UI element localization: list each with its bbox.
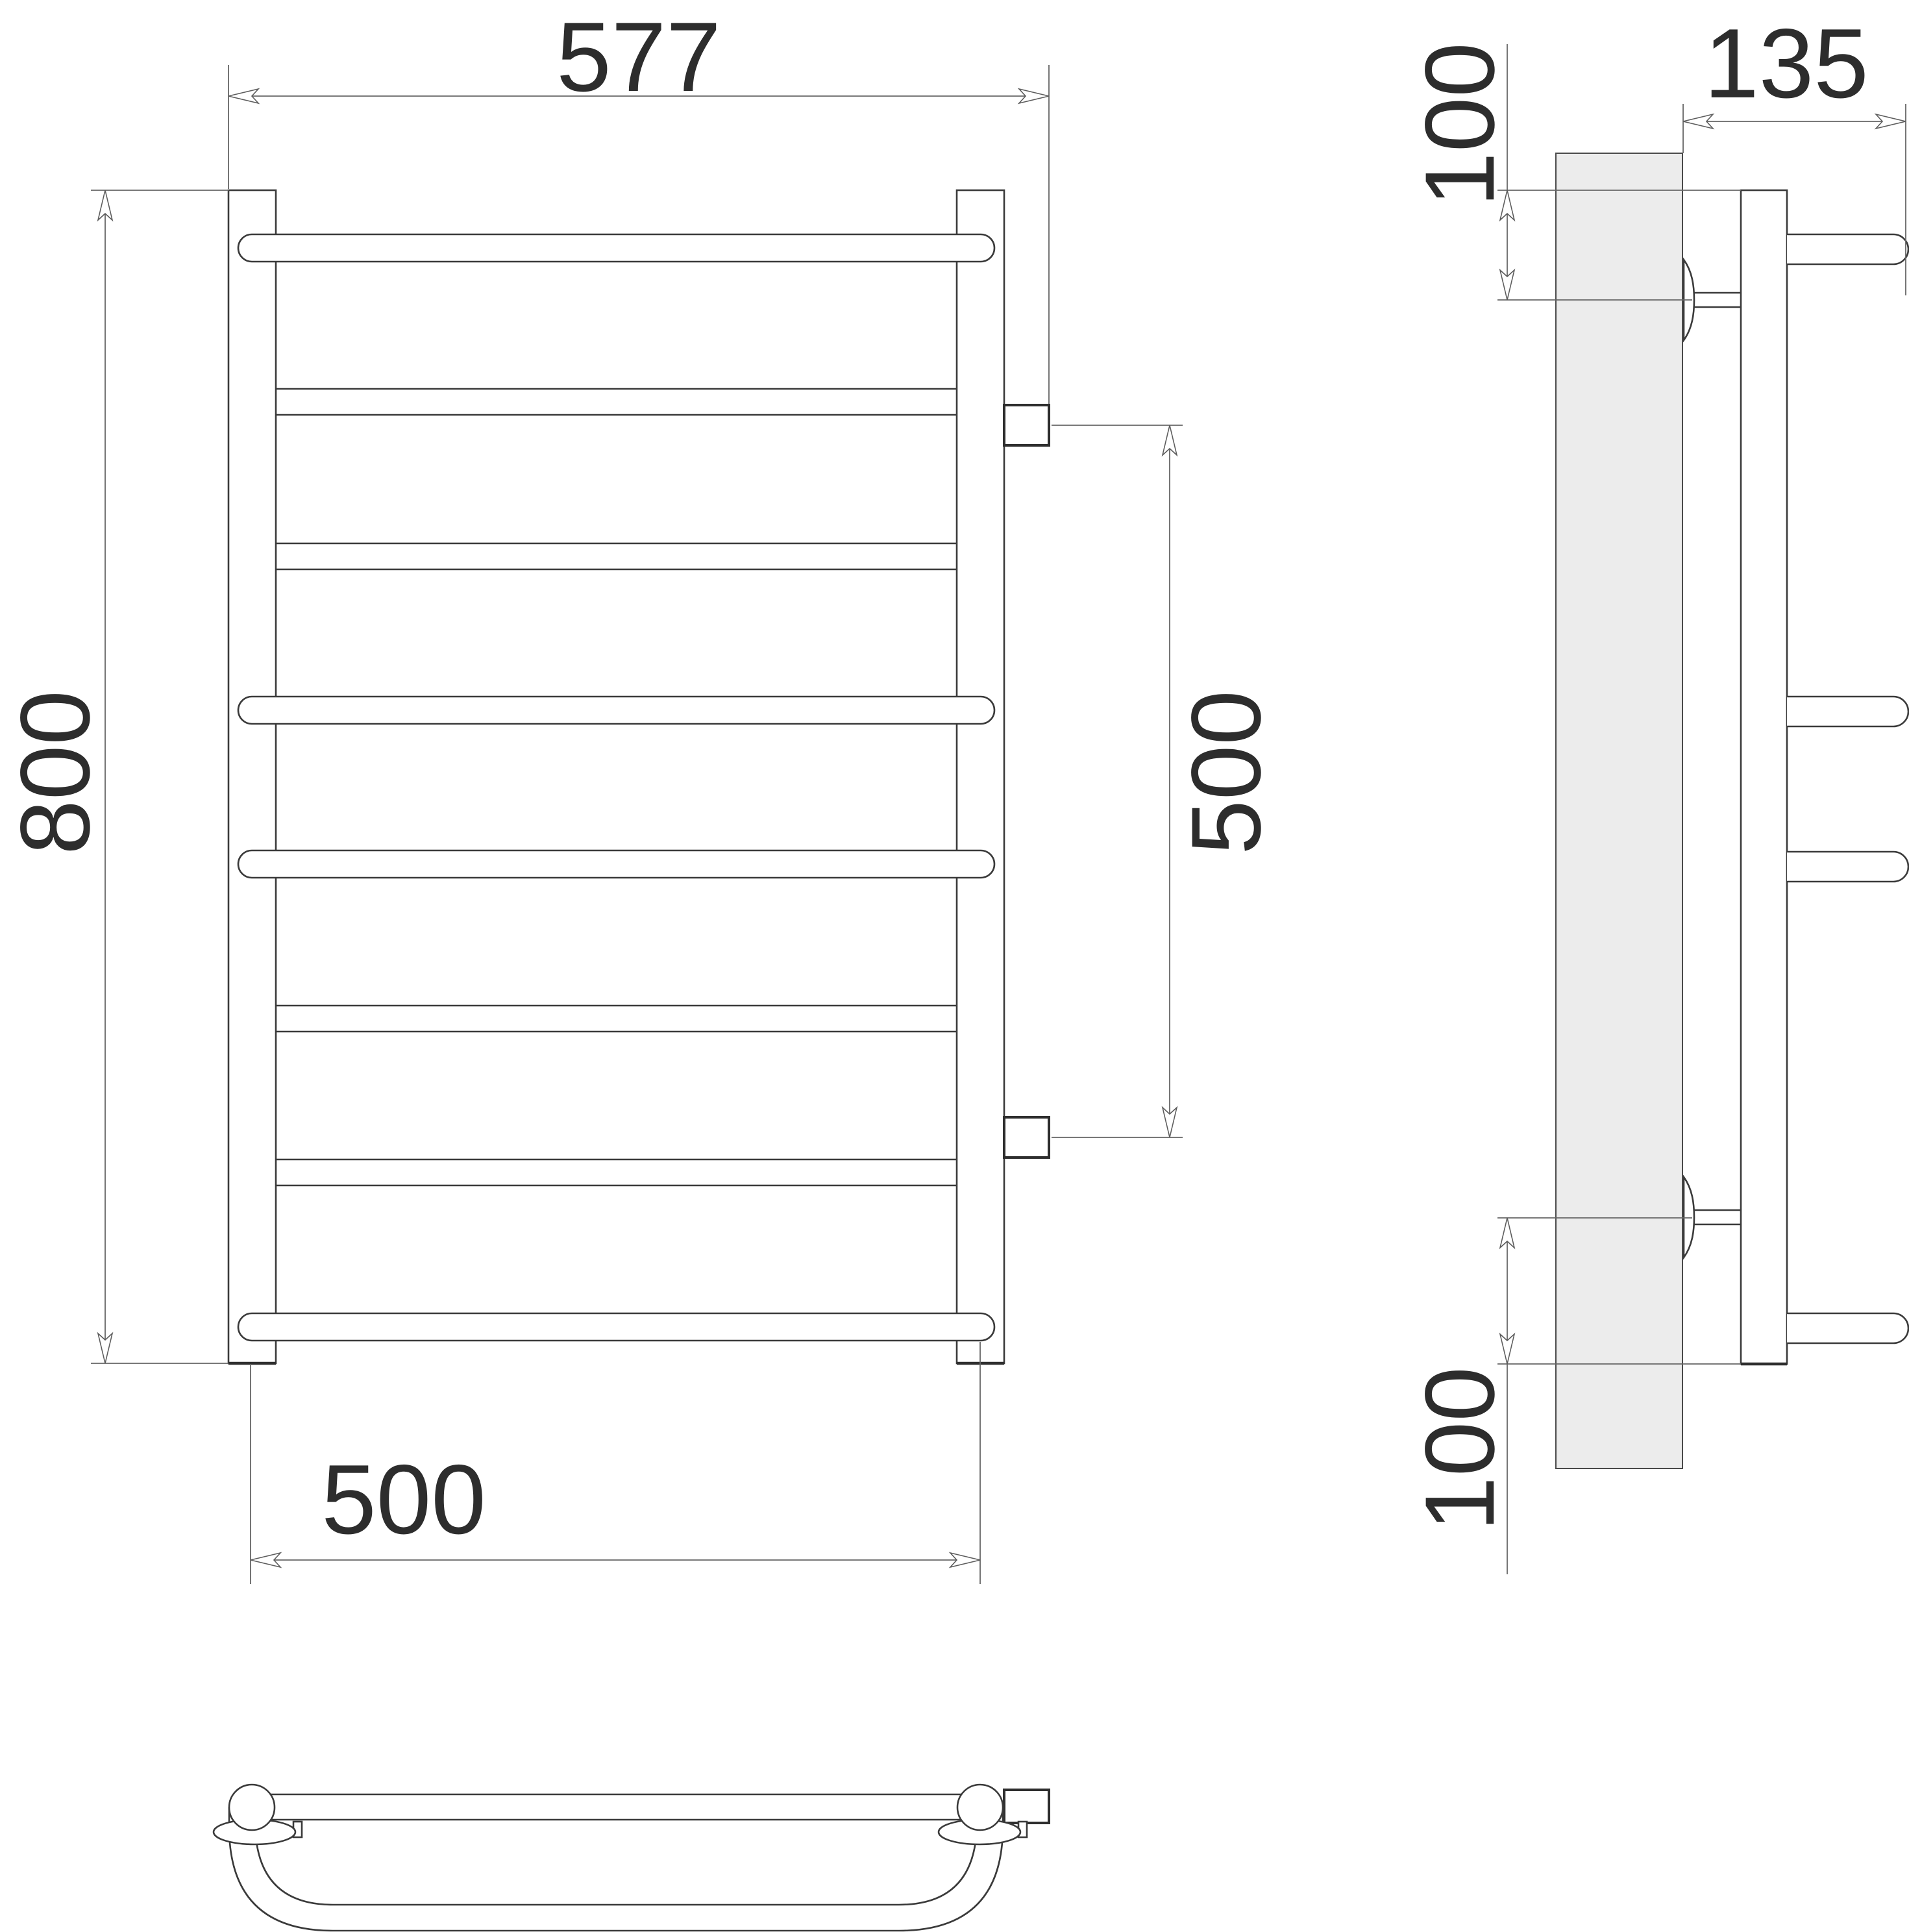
bottom-left-post-section — [229, 1785, 275, 1830]
front-bar-4 — [238, 697, 994, 724]
bottom-straight-tube — [266, 1794, 966, 1820]
front-bar-2 — [276, 389, 957, 415]
front-left-post — [228, 190, 276, 1363]
bracket-stem — [1693, 293, 1741, 307]
bottom-u-tube-outer — [229, 1807, 1003, 1931]
side-tube-middle-1 — [1787, 697, 1908, 726]
dim-label-bar-length: 500 — [321, 1444, 486, 1555]
dim-label-connection-spacing: 500 — [1171, 690, 1281, 855]
extension-lines — [1052, 425, 1183, 1137]
dim-label-top-offset: 100 — [1405, 42, 1515, 207]
side-wall — [1556, 153, 1682, 1468]
side-bracket-bottom — [1684, 1177, 1741, 1257]
bottom-right-post-section — [957, 1785, 1003, 1830]
side-tube-middle-2 — [1787, 852, 1908, 882]
bracket-stem — [1693, 1210, 1741, 1224]
front-view — [228, 190, 1049, 1363]
dim-label-depth: 135 — [1704, 8, 1869, 119]
front-bar-3 — [276, 543, 957, 569]
towel-rail-drawing: 577 800 500 500 135 100 — [0, 0, 1909, 1932]
side-tube-top — [1787, 234, 1908, 264]
dimension-577: 577 — [228, 2, 1049, 404]
bracket-flange — [1684, 1177, 1694, 1257]
dim-label-overall-width: 577 — [556, 2, 721, 112]
bottom-u-tube-inner — [255, 1807, 977, 1905]
dimension-800: 800 — [0, 190, 228, 1363]
front-bar-5 — [238, 850, 994, 878]
bottom-view — [214, 1785, 1049, 1931]
side-tube-bottom — [1787, 1313, 1908, 1343]
front-bottom-connector — [1004, 1117, 1049, 1158]
dimension-500-bottom: 500 — [251, 1342, 980, 1584]
front-top-connector — [1004, 405, 1049, 445]
front-bar-6 — [276, 1006, 957, 1032]
front-bar-8 — [238, 1313, 994, 1341]
dim-label-bottom-offset: 100 — [1405, 1367, 1515, 1531]
side-post-plate — [1741, 190, 1787, 1364]
drawing-sheet: 577 800 500 500 135 100 — [0, 0, 1909, 1932]
bottom-connector — [1004, 1790, 1049, 1823]
dim-label-overall-height: 800 — [0, 690, 110, 855]
front-right-post — [957, 190, 1004, 1363]
front-bar-7 — [276, 1159, 957, 1185]
extension-lines — [91, 190, 228, 1363]
extension-lines — [1683, 104, 1906, 295]
side-bracket-top — [1684, 260, 1741, 340]
dimension-500-right: 500 — [1052, 425, 1281, 1137]
front-bar-1 — [238, 234, 994, 262]
side-view — [1556, 153, 1908, 1468]
